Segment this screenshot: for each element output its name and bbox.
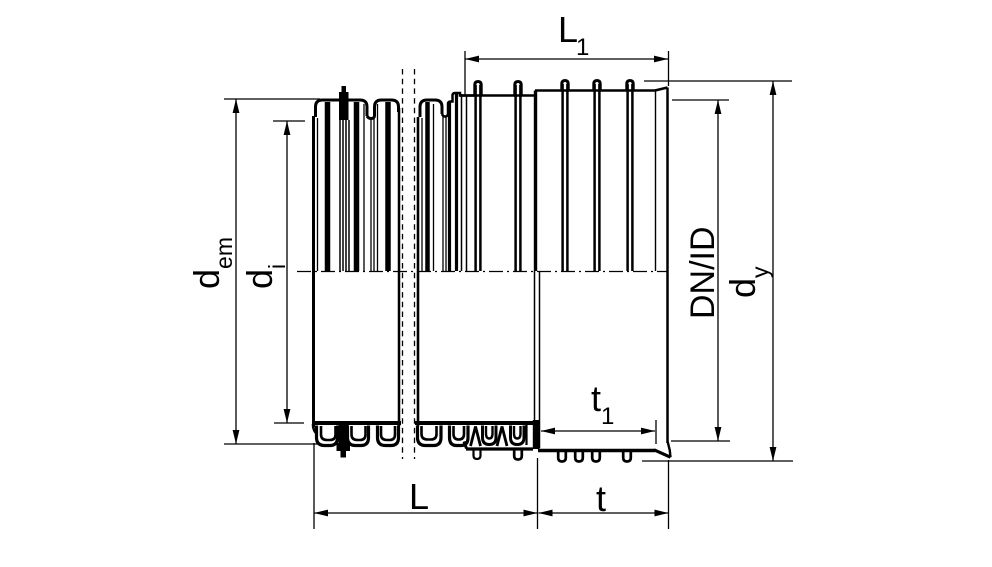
svg-text:t: t (596, 478, 606, 519)
svg-text:DN/ID: DN/ID (684, 226, 722, 319)
svg-text:L: L (409, 476, 429, 517)
